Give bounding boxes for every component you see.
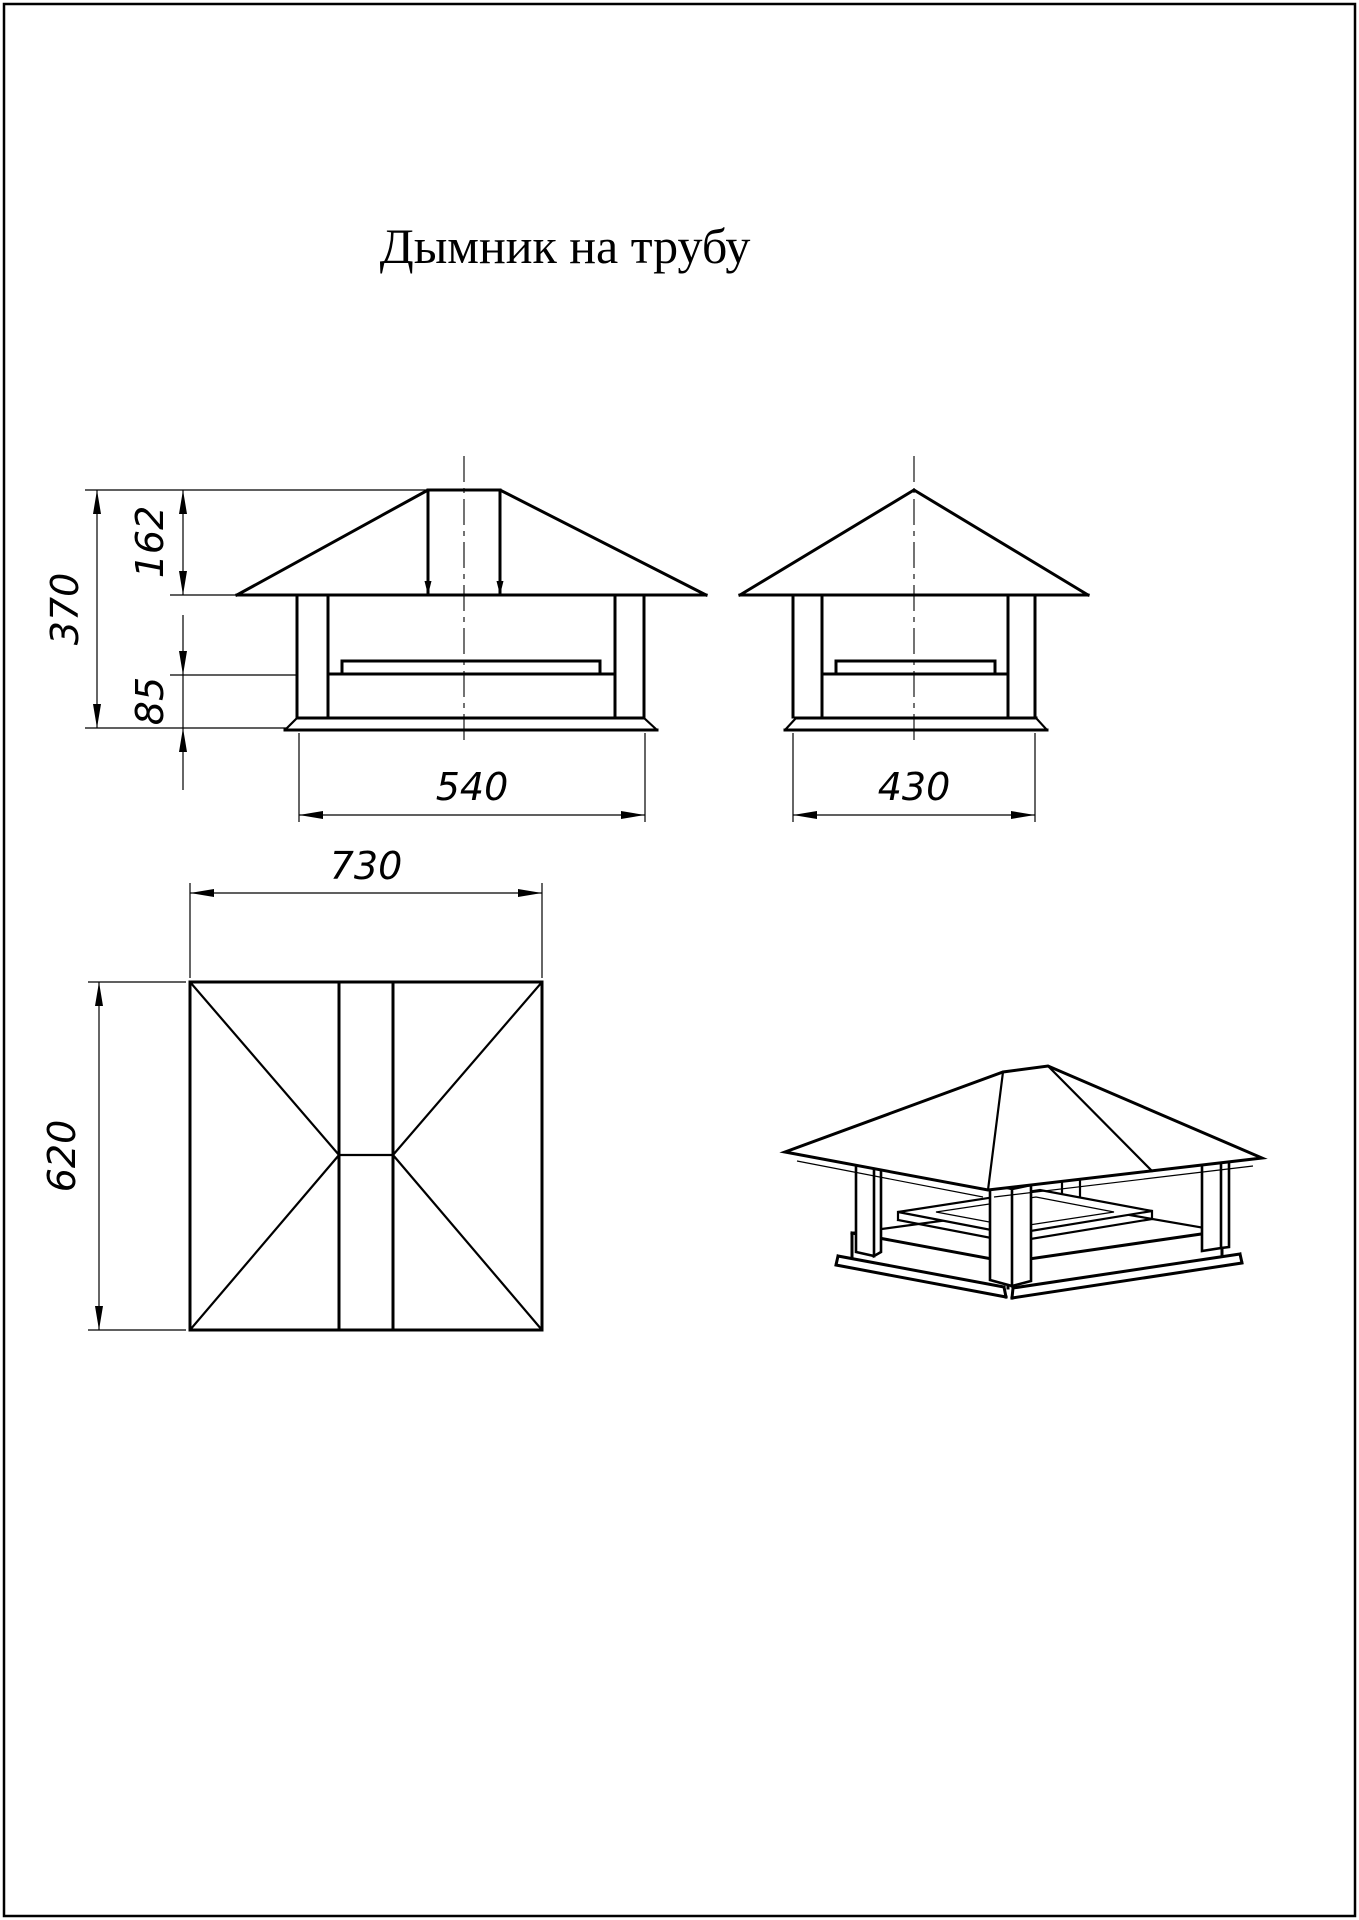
dim-plan-depth: 620 [40, 1120, 84, 1193]
front-dimension-arrows [93, 490, 645, 819]
dim-front-base-height: 85 [128, 677, 172, 725]
side-base-flange-ticks [785, 718, 1047, 730]
front-screen-shelf [328, 661, 615, 674]
plan-hip-lines [190, 982, 542, 1330]
front-roof-outline [237, 490, 706, 595]
dim-front-total-height: 370 [43, 573, 87, 646]
side-corner-posts [793, 595, 1035, 717]
iso-right-post [1202, 1159, 1229, 1251]
dim-side-width: 430 [878, 765, 951, 809]
sheet-border [4, 4, 1355, 1916]
plan-dimension-arrows [95, 889, 542, 1330]
dim-front-roof-height: 162 [128, 506, 172, 579]
plan-dimension-lines [88, 883, 542, 1330]
front-base-flange-ticks [285, 718, 657, 730]
dim-front-width: 540 [436, 765, 509, 809]
front-corner-posts [297, 595, 644, 717]
side-base-flange [785, 718, 1047, 730]
drawing-title: Дымник на трубу [380, 218, 751, 274]
side-screen-shelf [822, 661, 1008, 674]
front-dimension-lines [97, 490, 645, 815]
iso-front-post [990, 1184, 1031, 1286]
plan-view: 730 620 [40, 844, 542, 1330]
front-base-flange [285, 718, 657, 730]
iso-view [785, 1066, 1262, 1298]
iso-left-post [856, 1164, 881, 1256]
side-view: 430 [740, 456, 1088, 822]
dim-plan-width: 730 [330, 844, 403, 888]
drawing-sheet: Дымник на трубу 370 162 85 540 [0, 0, 1359, 1920]
drawing-canvas: Дымник на трубу 370 162 85 540 [0, 0, 1359, 1920]
iso-base-flange [836, 1254, 1242, 1298]
front-view: 370 162 85 540 [43, 456, 706, 822]
